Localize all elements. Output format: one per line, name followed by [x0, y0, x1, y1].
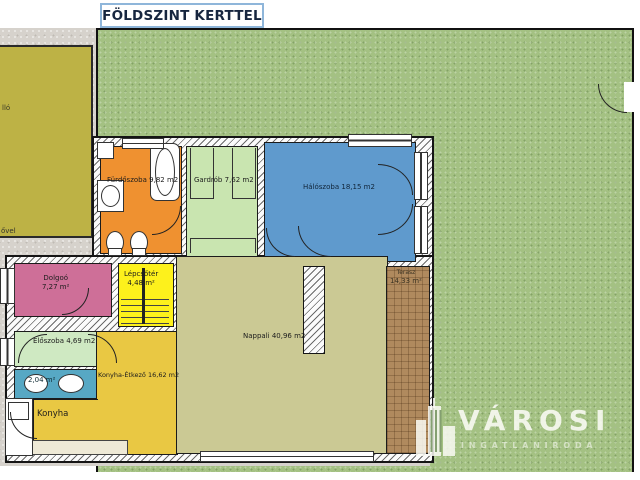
logo-brand-text: VÁROSI — [458, 404, 611, 437]
carport-room — [0, 45, 93, 238]
floor-plan-page: lló ővel — [0, 0, 640, 480]
staircase-treads — [121, 294, 169, 324]
wardrobe-left — [190, 148, 214, 199]
wardrobe-right — [232, 148, 256, 199]
window-nappali-bottom — [200, 451, 374, 462]
label-konyha: Konyha — [37, 409, 68, 420]
room-nappali — [176, 256, 388, 454]
label-wc-area: 2,04 m² — [28, 376, 55, 385]
window-dolgozo-left — [0, 268, 15, 304]
window-haloszoba-right-2 — [414, 206, 428, 254]
label-eloszoba: Előszoba 4,69 m2 — [33, 337, 95, 346]
label-terasz: Terasz 14,33 m² — [390, 269, 422, 285]
wardrobe-bottom-shelf — [190, 238, 256, 253]
logo-tagline-text: INGATLANIRODA — [461, 441, 597, 450]
washing-machine — [97, 142, 114, 159]
nappali-pillar — [303, 266, 325, 354]
paving-label-fragment: ővel — [1, 227, 16, 235]
toilet-2-base — [132, 248, 146, 256]
bathroom-sink-bowl — [101, 185, 120, 207]
window-haloszoba-top — [348, 134, 412, 147]
label-nappali: Nappali 40,96 m2 — [243, 332, 305, 341]
window-eloszoba-left — [0, 338, 15, 366]
logo-building-icon — [414, 392, 460, 458]
label-dolgozo: Dolgoó 7,27 m² — [42, 274, 69, 292]
label-lepcsoter: Lépcsőtér 4,48 m² — [124, 270, 158, 288]
label-furdoszoba: Fürdőszoba 9,82 m2 — [107, 176, 178, 185]
window-haloszoba-right-1 — [414, 152, 428, 200]
carport-label-fragment: lló — [2, 104, 10, 112]
toilet-1-base — [108, 248, 122, 256]
page-title: FÖLDSZINT KERTTEL — [100, 3, 264, 28]
bathtub-basin — [155, 148, 175, 196]
label-konyha-etkezo: Konyha-Étkező 16,62 m2 — [98, 371, 179, 379]
wc-toilet — [58, 374, 84, 393]
label-haloszoba: Hálószoba 18,15 m2 — [303, 183, 375, 192]
room-konyha-corner — [33, 399, 98, 442]
window-furdoszoba-top — [122, 138, 164, 149]
label-gardrob: Gardrób 7,62 m2 — [194, 176, 254, 185]
